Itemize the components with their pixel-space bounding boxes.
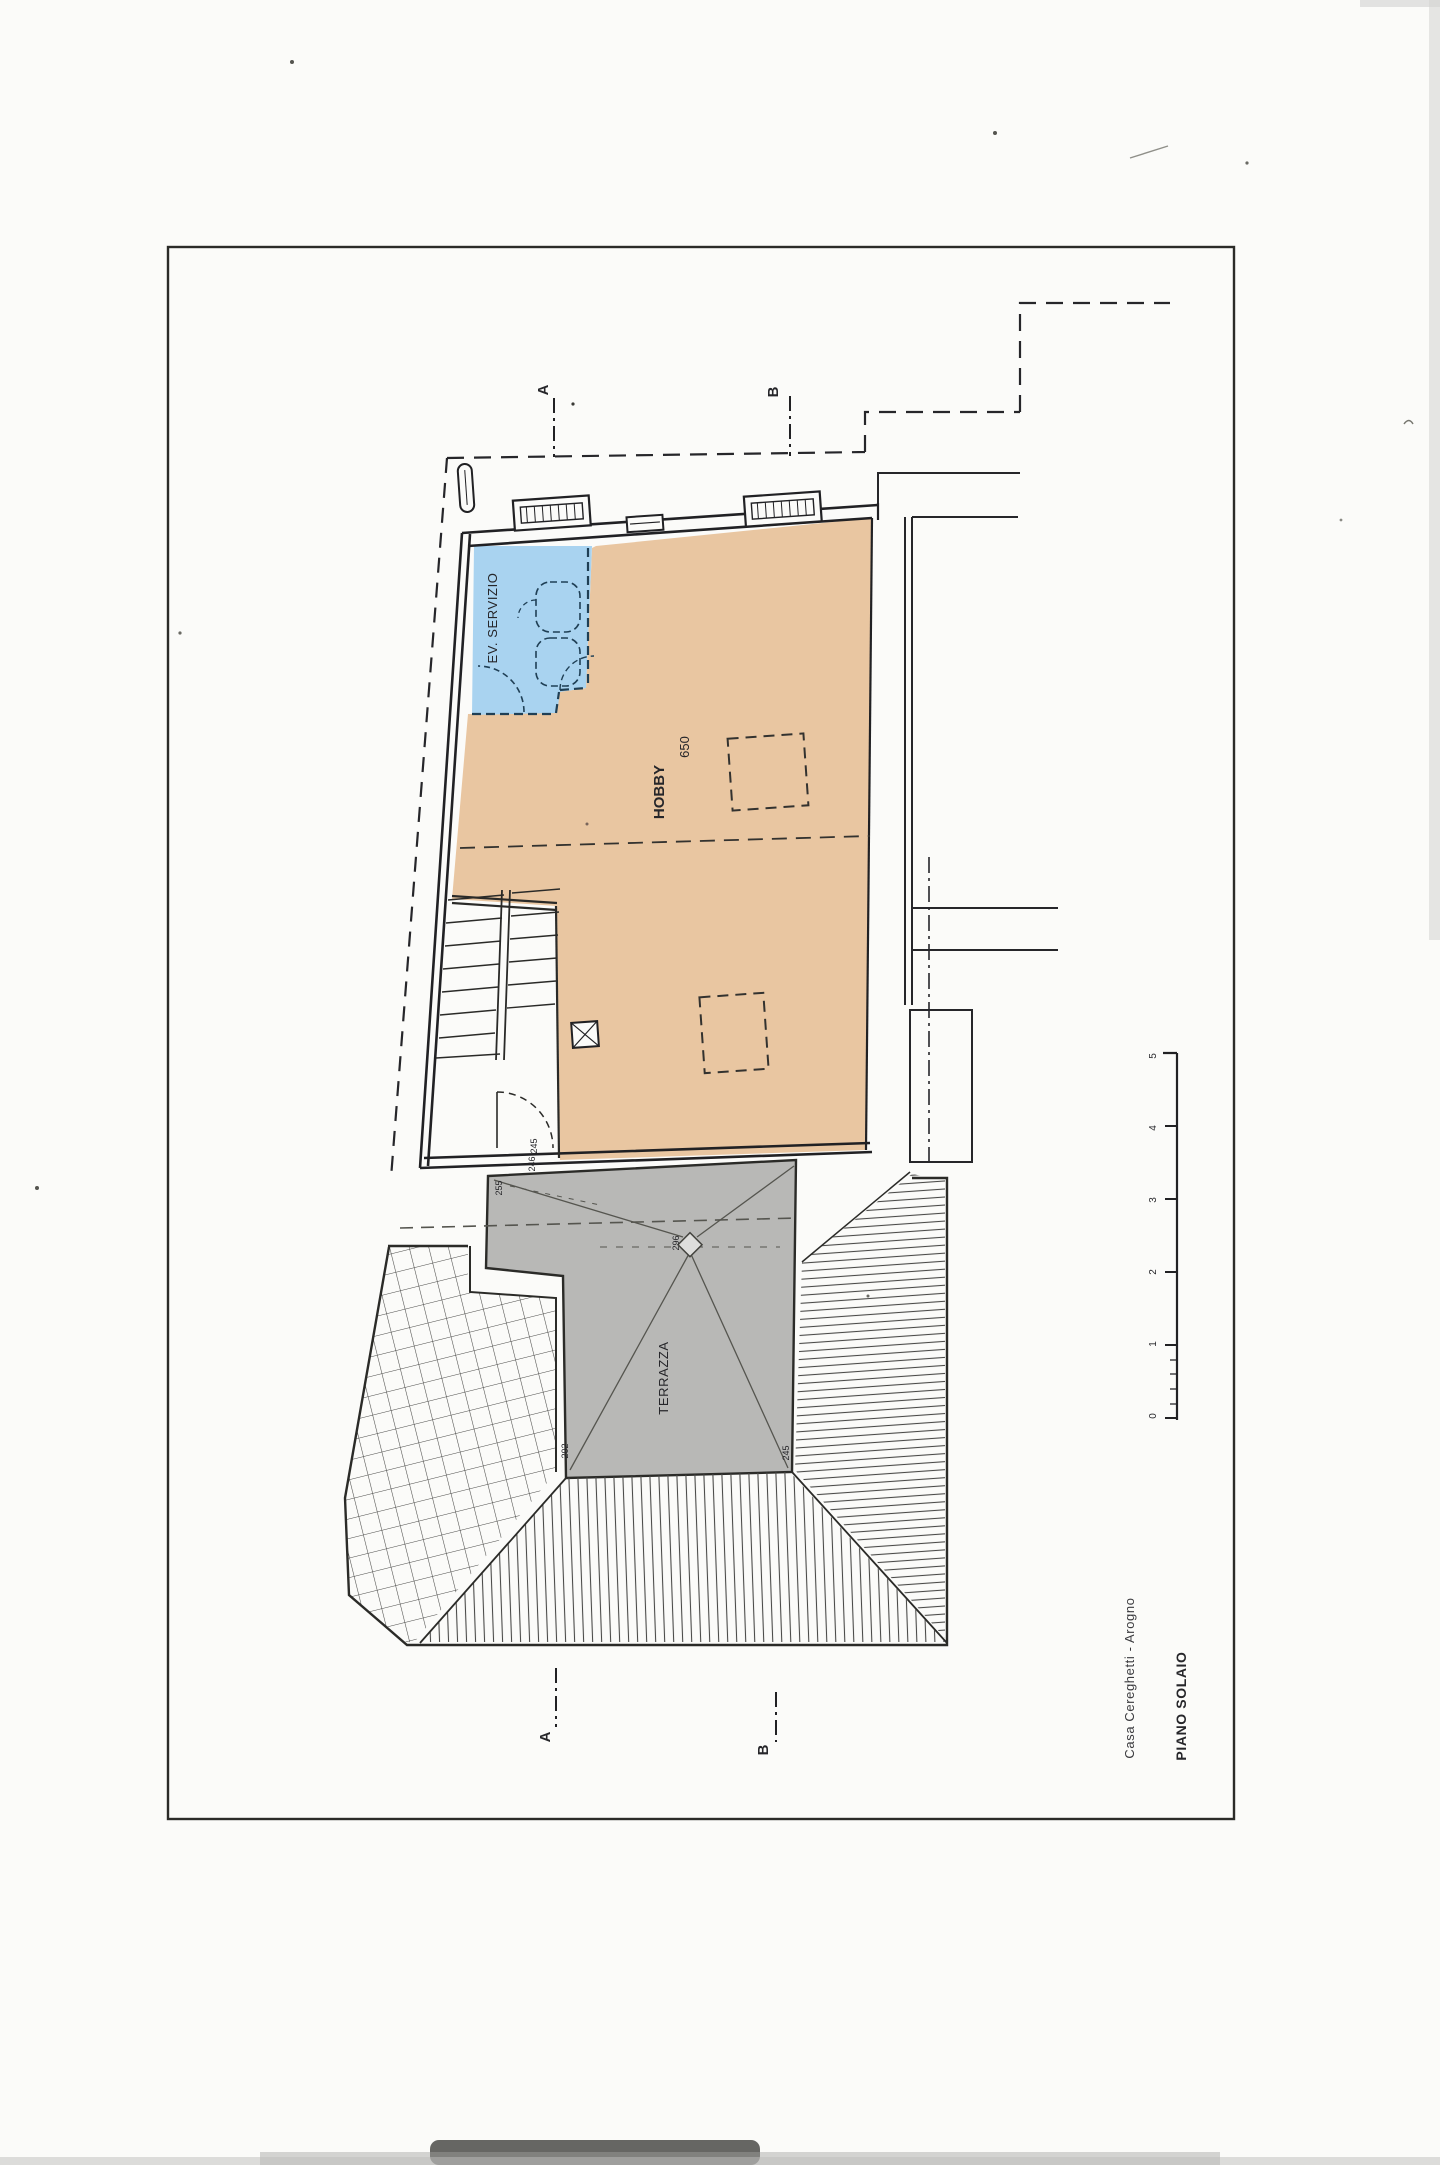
scale-tick-3: 3 <box>1148 1197 1159 1203</box>
scale-tick-0: 0 <box>1148 1413 1159 1419</box>
title-project: Casa Cereghetti - Arogno <box>1122 1597 1137 1758</box>
room-label-terrazza: TERRAZZA <box>656 1341 671 1414</box>
chimney <box>910 1010 972 1162</box>
dim-door-bottom: 246 <box>527 1156 537 1171</box>
scale-tick-1: 1 <box>1148 1341 1159 1347</box>
dim-terrace-drain: 296 <box>671 1235 681 1250</box>
room-area-hobby: 650 <box>677 736 692 758</box>
window-2 <box>744 491 822 526</box>
scale-tick-5: 5 <box>1148 1053 1159 1059</box>
svg-text:A: A <box>535 384 552 395</box>
svg-text:B: B <box>755 1744 772 1755</box>
vent-window <box>626 515 663 532</box>
svg-text:A: A <box>537 1731 554 1742</box>
room-label-servizio: EV. SERVIZIO <box>485 572 500 663</box>
room-label-hobby: HOBBY <box>651 765 668 819</box>
downpipe <box>457 464 474 513</box>
scale-tick-4: 4 <box>1148 1125 1159 1131</box>
dim-door-top: 245 <box>529 1138 539 1153</box>
dim-terrace-br: 245 <box>781 1445 791 1460</box>
scanned-floor-plan-page: EV. SERVIZIO HOBBY 650 TERRAZZA <box>0 0 1440 2165</box>
dim-terrace-tl: 255 <box>494 1180 504 1195</box>
floor-drain <box>571 1021 599 1048</box>
scale-tick-2: 2 <box>1148 1269 1159 1275</box>
svg-text:B: B <box>765 386 782 397</box>
window-1 <box>513 495 591 530</box>
dim-terrace-bl: 202 <box>560 1443 570 1458</box>
title-sheet: PIANO SOLAIO <box>1173 1651 1189 1760</box>
floor-plan-drawing: EV. SERVIZIO HOBBY 650 TERRAZZA <box>0 0 1440 2165</box>
